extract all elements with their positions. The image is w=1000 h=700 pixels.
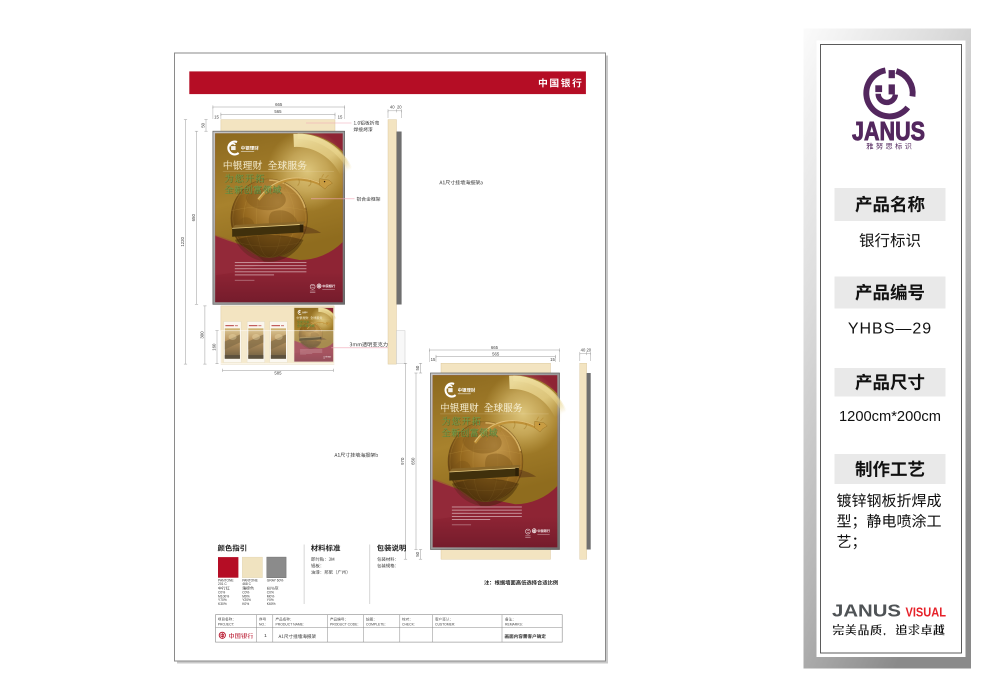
svg-text:20: 20 — [586, 347, 591, 352]
svg-text:665: 665 — [275, 102, 283, 107]
svg-text:565: 565 — [492, 351, 500, 356]
svg-text:CUSTOMER:: CUSTOMER: — [435, 622, 455, 626]
svg-text:1: 1 — [264, 633, 267, 639]
svg-text:K30%: K30% — [218, 602, 227, 606]
svg-text:160: 160 — [212, 343, 217, 351]
svg-text:650: 650 — [191, 214, 196, 222]
svg-text:YHBS—29: YHBS—29 — [848, 321, 932, 338]
svg-text:K0%: K0% — [242, 602, 249, 606]
svg-text:15: 15 — [550, 357, 555, 362]
svg-text:1200cm*200cm: 1200cm*200cm — [839, 408, 941, 425]
svg-text:650: 650 — [411, 457, 416, 465]
svg-text:665: 665 — [491, 345, 499, 350]
svg-text:468 C: 468 C — [242, 582, 251, 586]
svg-text:565: 565 — [274, 109, 282, 114]
svg-text:50: 50 — [201, 122, 206, 127]
svg-text:20: 20 — [397, 105, 402, 110]
svg-text:15: 15 — [338, 115, 343, 120]
svg-text:50: 50 — [415, 551, 420, 556]
svg-text:585: 585 — [274, 371, 282, 376]
svg-text:15: 15 — [214, 115, 219, 120]
svg-text:NO.:: NO.: — [259, 622, 266, 626]
svg-text:970: 970 — [400, 457, 405, 465]
svg-text:40: 40 — [390, 105, 395, 110]
svg-text:201 C: 201 C — [218, 582, 227, 586]
svg-text:COMPLETE:: COMPLETE: — [366, 622, 386, 626]
svg-text:VISUAL: VISUAL — [906, 605, 947, 620]
svg-text:PRODUCT CODE:: PRODUCT CODE: — [330, 622, 358, 626]
svg-text:GRAY 60%: GRAY 60% — [267, 578, 284, 582]
svg-text:300: 300 — [200, 331, 205, 339]
svg-text:PRODUCT NAME:: PRODUCT NAME: — [276, 622, 304, 626]
svg-text:1220: 1220 — [180, 236, 185, 246]
svg-text:K60%: K60% — [267, 602, 276, 606]
svg-text:JANUS: JANUS — [832, 601, 901, 621]
svg-text:JANUS: JANUS — [852, 116, 925, 146]
svg-text:15: 15 — [431, 357, 436, 362]
svg-text:40: 40 — [581, 347, 586, 352]
svg-text:CHECK:: CHECK: — [402, 622, 415, 626]
svg-text:50: 50 — [415, 365, 420, 370]
svg-text:PROJECT:: PROJECT: — [218, 622, 234, 626]
svg-text:REMARKS:: REMARKS: — [505, 622, 523, 626]
